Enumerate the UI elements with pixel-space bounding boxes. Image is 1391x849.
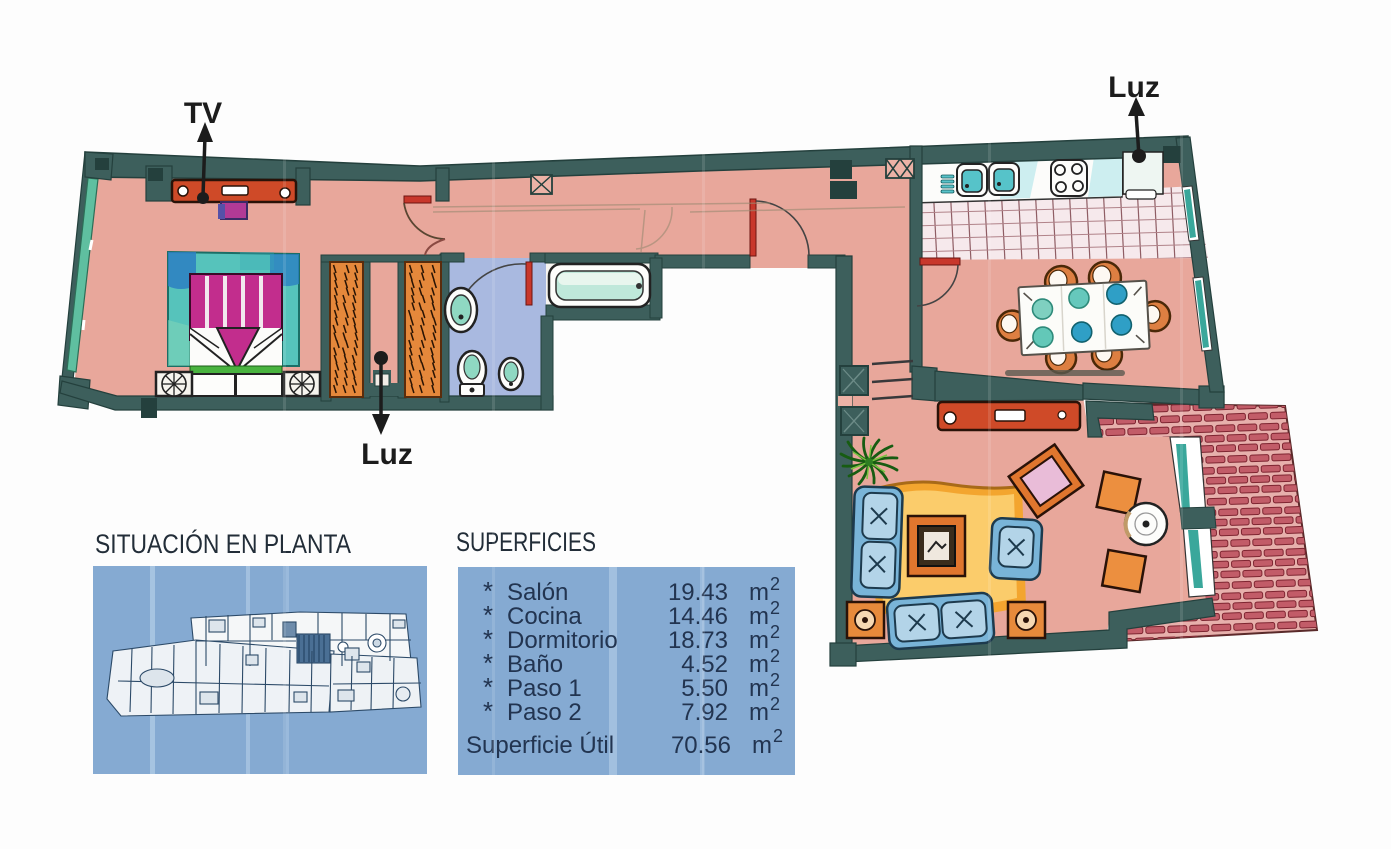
svg-text:2: 2 — [773, 726, 783, 746]
svg-text:Dormitorio: Dormitorio — [507, 627, 618, 654]
svg-text:m: m — [749, 699, 769, 726]
svg-text:m: m — [749, 579, 769, 606]
svg-text:2: 2 — [770, 694, 780, 714]
svg-text:2: 2 — [770, 670, 780, 690]
svg-text:14.46: 14.46 — [668, 603, 728, 630]
svg-text:Cocina: Cocina — [507, 603, 582, 630]
svg-text:TV: TV — [184, 97, 222, 130]
svg-text:m: m — [749, 603, 769, 630]
svg-text:2: 2 — [770, 574, 780, 594]
svg-text:Superficie Útil: Superficie Útil — [466, 732, 614, 759]
svg-text:Paso 2: Paso 2 — [507, 699, 582, 726]
svg-text:SUPERFICIES: SUPERFICIES — [456, 527, 596, 557]
svg-text:18.73: 18.73 — [668, 627, 728, 654]
svg-text:m: m — [749, 651, 769, 678]
svg-text:2: 2 — [770, 622, 780, 642]
svg-text:2: 2 — [770, 598, 780, 618]
svg-text:m: m — [749, 627, 769, 654]
svg-text:2: 2 — [770, 646, 780, 666]
svg-text:Baño: Baño — [507, 651, 563, 678]
svg-text:m: m — [752, 732, 772, 759]
svg-text:Luz: Luz — [361, 438, 413, 471]
svg-text:Luz: Luz — [1108, 71, 1160, 104]
svg-text:m: m — [749, 675, 769, 702]
svg-text:70.56: 70.56 — [671, 732, 731, 759]
svg-text:19.43: 19.43 — [668, 579, 728, 606]
svg-text:Paso 1: Paso 1 — [507, 675, 582, 702]
svg-text:*: * — [483, 696, 493, 726]
svg-text:Salón: Salón — [507, 579, 568, 606]
svg-text:SITUACIÓN EN PLANTA: SITUACIÓN EN PLANTA — [95, 528, 351, 559]
